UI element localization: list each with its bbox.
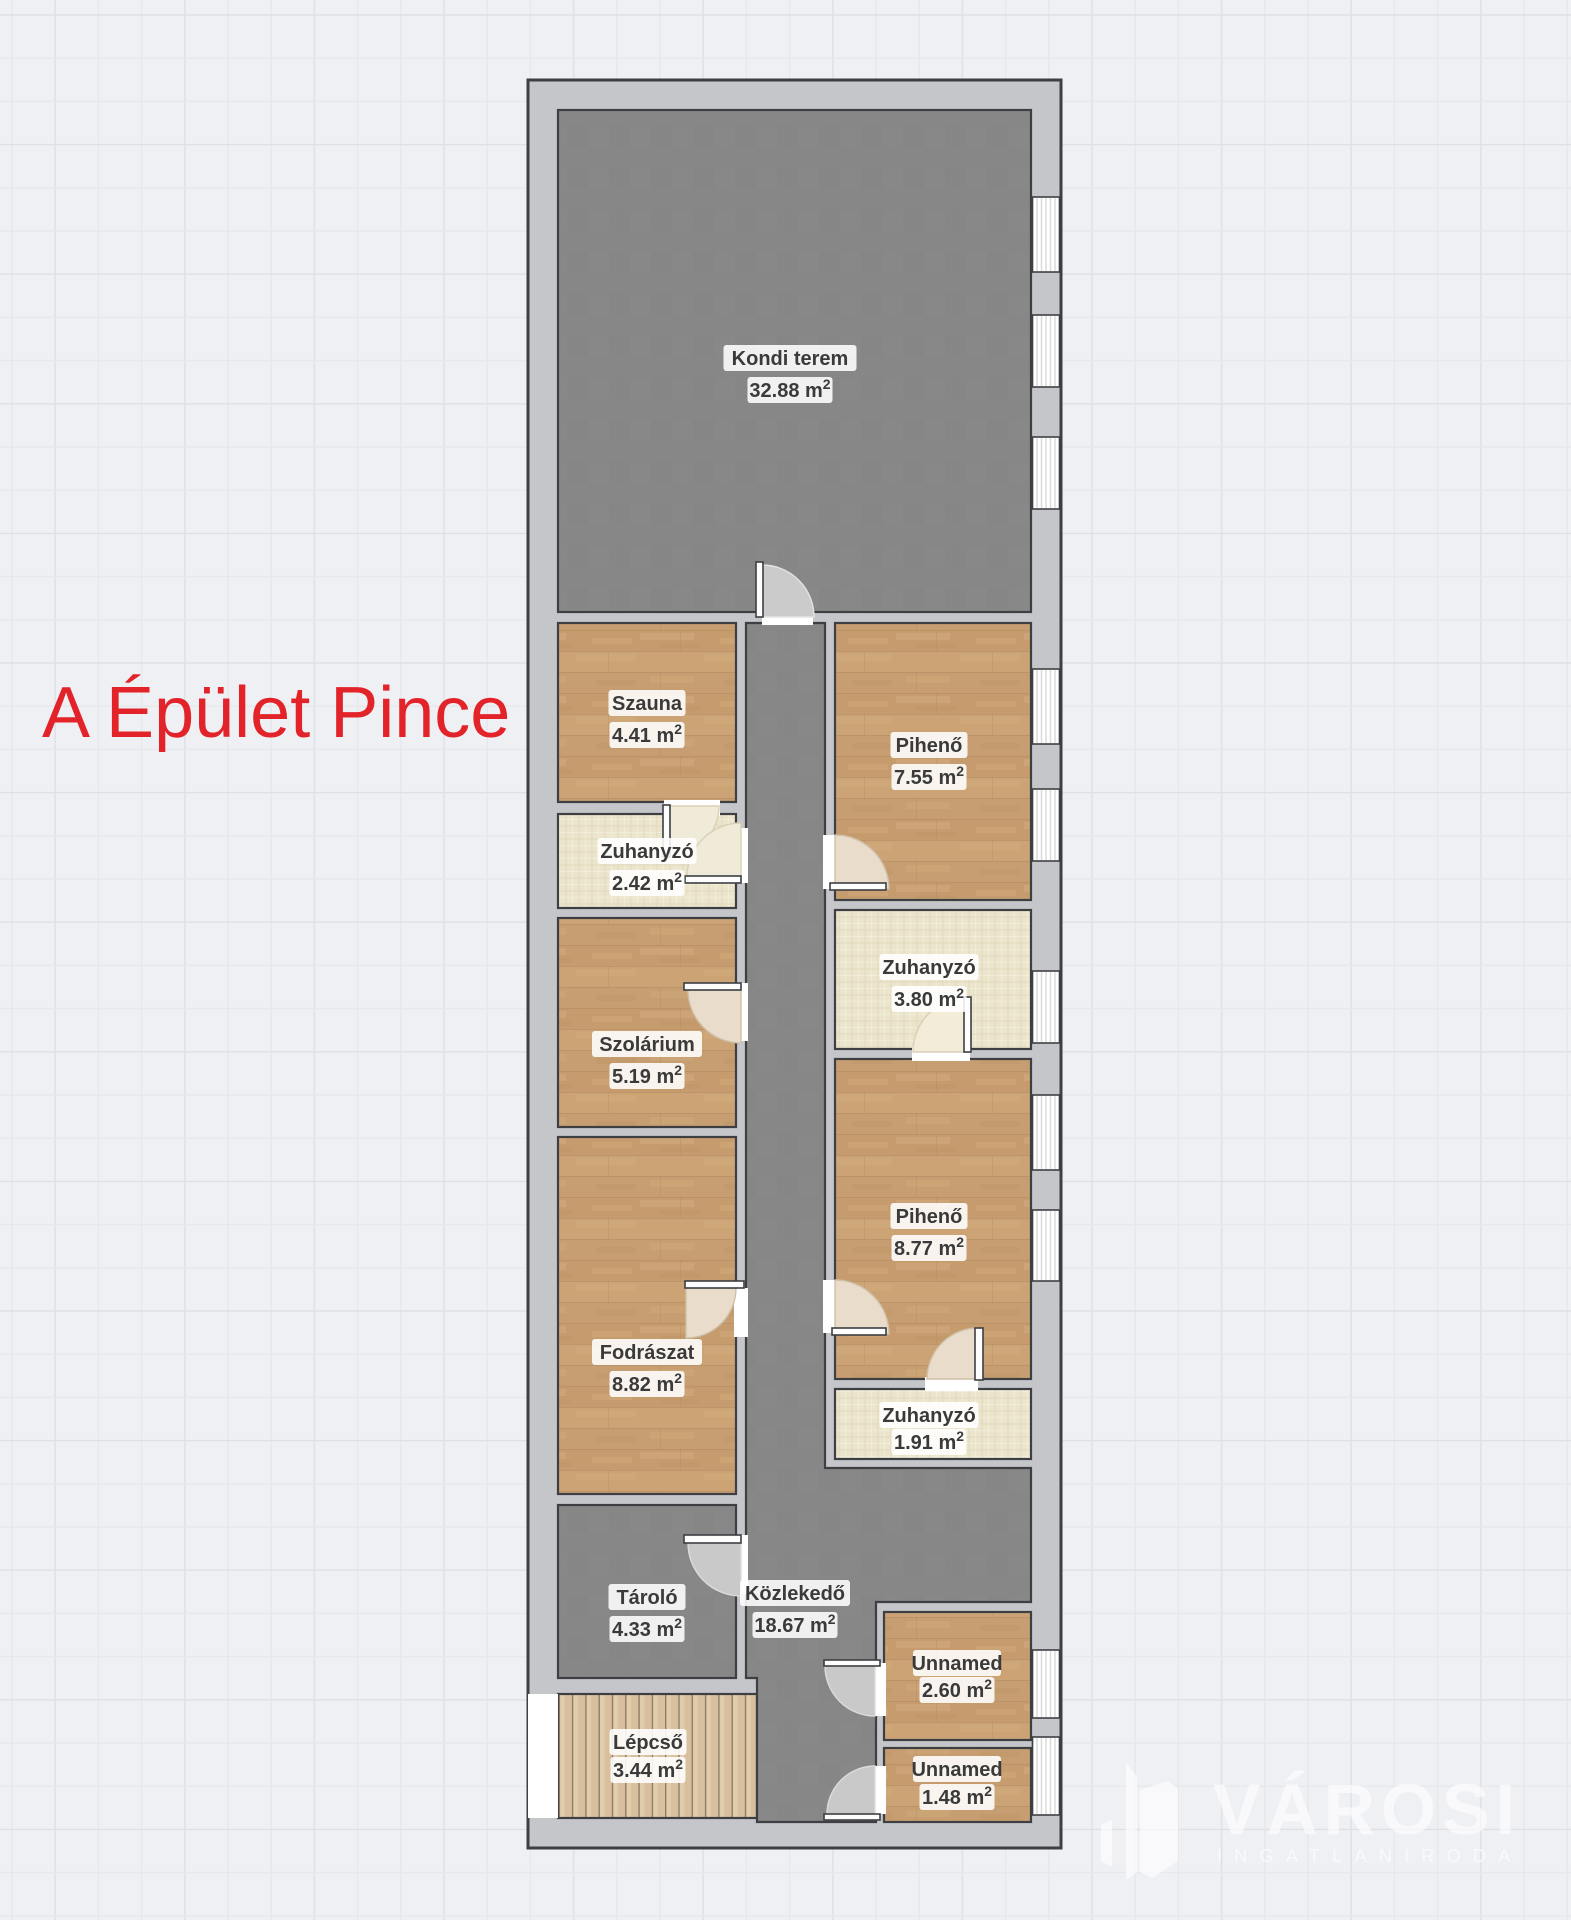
svg-text:1.48 m2: 1.48 m2 <box>922 1783 992 1809</box>
svg-text:Zuhanyzó: Zuhanyzó <box>882 957 975 979</box>
svg-text:Tároló: Tároló <box>616 1587 677 1609</box>
svg-text:Zuhanyzó: Zuhanyzó <box>882 1405 975 1427</box>
svg-text:18.67 m2: 18.67 m2 <box>754 1611 835 1637</box>
svg-text:Lépcső: Lépcső <box>613 1732 683 1754</box>
svg-text:VÁROSI: VÁROSI <box>1213 1771 1521 1850</box>
svg-text:3.44 m2: 3.44 m2 <box>613 1756 683 1782</box>
svg-text:Fodrászat: Fodrászat <box>600 1342 695 1364</box>
svg-text:8.77 m2: 8.77 m2 <box>894 1234 964 1260</box>
svg-text:32.88 m2: 32.88 m2 <box>749 376 830 402</box>
svg-text:4.33 m2: 4.33 m2 <box>612 1615 682 1641</box>
svg-text:1.91 m2: 1.91 m2 <box>894 1428 964 1454</box>
svg-text:Unnamed: Unnamed <box>911 1759 1002 1781</box>
svg-text:Pihenő: Pihenő <box>896 735 963 757</box>
svg-text:Kondi terem: Kondi terem <box>732 348 849 370</box>
svg-text:Szauna: Szauna <box>612 693 683 715</box>
svg-text:2.42 m2: 2.42 m2 <box>612 869 682 895</box>
svg-text:Unnamed: Unnamed <box>911 1653 1002 1675</box>
svg-text:Zuhanyzó: Zuhanyzó <box>600 841 693 863</box>
svg-text:Szolárium: Szolárium <box>599 1034 695 1056</box>
svg-text:INGATLANIRODA: INGATLANIRODA <box>1217 1846 1523 1866</box>
svg-text:A Épület Pince: A Épület Pince <box>42 673 510 753</box>
svg-text:4.41 m2: 4.41 m2 <box>612 721 682 747</box>
svg-text:8.82 m2: 8.82 m2 <box>612 1370 682 1396</box>
svg-text:Közlekedő: Közlekedő <box>745 1583 845 1605</box>
svg-text:3.80 m2: 3.80 m2 <box>894 985 964 1011</box>
svg-text:7.55 m2: 7.55 m2 <box>894 763 964 789</box>
svg-text:2.60 m2: 2.60 m2 <box>922 1676 992 1702</box>
svg-text:5.19 m2: 5.19 m2 <box>612 1062 682 1088</box>
svg-text:Pihenő: Pihenő <box>896 1206 963 1228</box>
